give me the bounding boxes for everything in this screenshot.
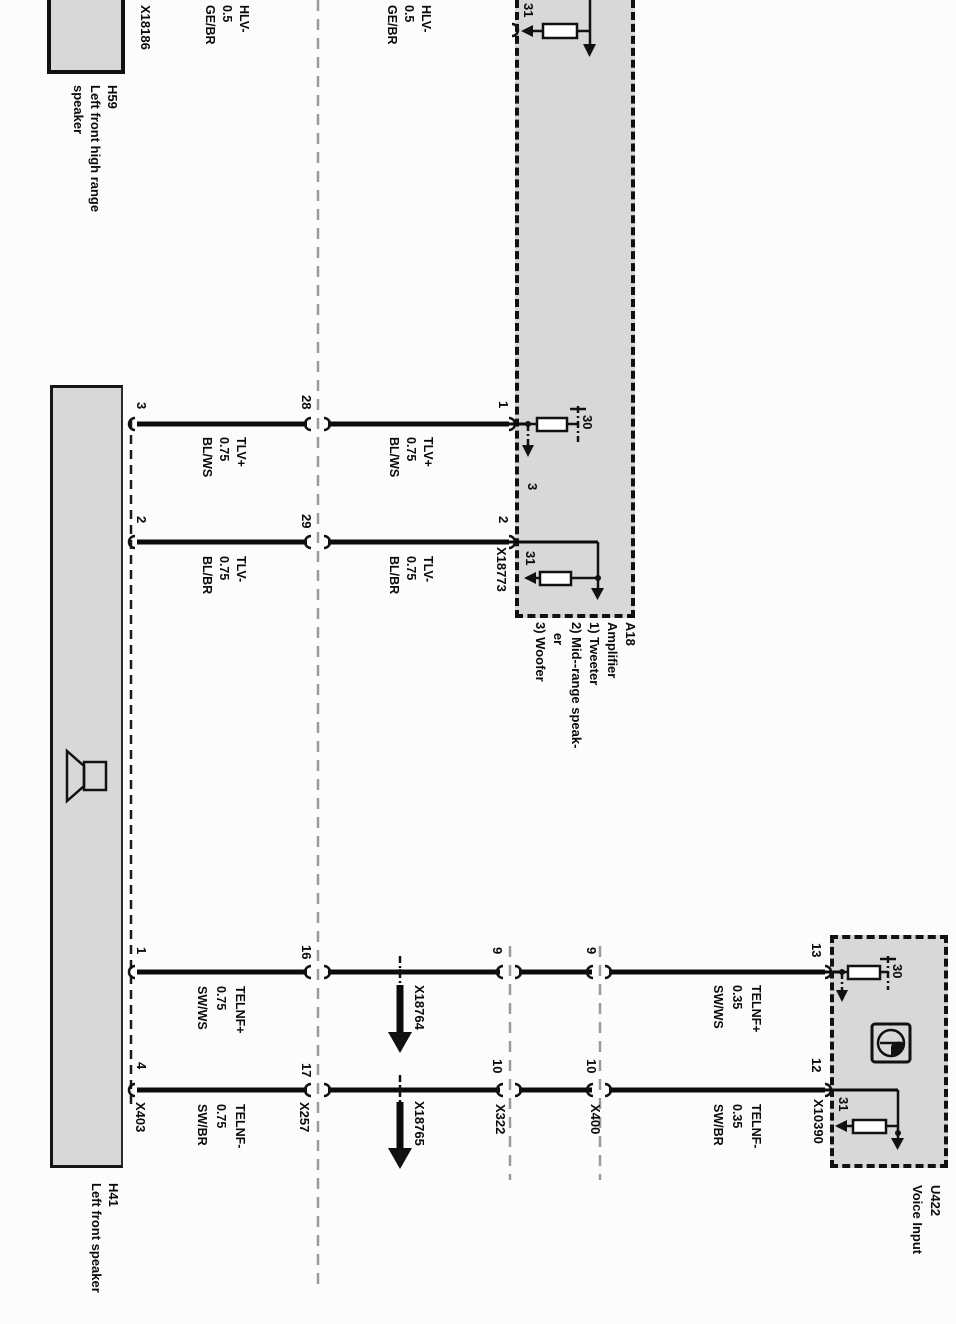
a18-terminal-30-circuit bbox=[509, 406, 586, 457]
wire-label-telnf-minus-35: TELNF- 0.35 SW/BR bbox=[708, 1104, 765, 1148]
resistor-u422-top bbox=[848, 966, 880, 979]
u422-terminal-30-circuit bbox=[825, 956, 896, 1002]
pin-label-13: 13 bbox=[810, 943, 823, 957]
connector-label-x10390: X10390 bbox=[810, 1099, 826, 1144]
wire-label-tlv-plus-1: TLV+ 0.75 BL/WS bbox=[198, 437, 249, 477]
connector-label-x18765: X18765 bbox=[411, 1101, 427, 1146]
pin-label-12: 12 bbox=[810, 1058, 823, 1072]
ground-symbol-u422 bbox=[891, 1138, 904, 1150]
pin-label-h41-1: 1 bbox=[135, 947, 148, 954]
pin-label-h41-4: 4 bbox=[135, 1062, 148, 1069]
pin-label-x400-10: 10 bbox=[585, 1059, 598, 1073]
wire-label-tlv-minus-2: TLV- 0.75 BL/BR bbox=[385, 556, 436, 594]
microphone-icon bbox=[872, 1024, 910, 1062]
wire-label-tlv-plus-2: TLV+ 0.75 BL/WS bbox=[385, 437, 436, 477]
arrow-to-terminal-31-u422 bbox=[835, 1120, 847, 1132]
wire-label-telnf-plus-35: TELNF+ 0.35 SW/WS bbox=[708, 985, 765, 1033]
pin-label-x322-10: 10 bbox=[491, 1059, 504, 1073]
pin-label-16: 16 bbox=[300, 945, 313, 959]
connector-label-x257: X257 bbox=[296, 1102, 312, 1132]
pin-label-17: 17 bbox=[300, 1063, 313, 1077]
connector-label-x400: X400 bbox=[587, 1104, 603, 1134]
resistor-u422-bottom bbox=[853, 1120, 886, 1133]
pin-label-x322-9: 9 bbox=[491, 947, 504, 954]
terminal-label-31-u422: 31 bbox=[837, 1097, 850, 1111]
connector-label-x18773: X18773 bbox=[493, 547, 509, 592]
wire-label-telnf-minus-75: TELNF- 0.75 SW/BR bbox=[192, 1104, 249, 1148]
arrow-to-terminal-31-b bbox=[524, 572, 536, 584]
schematic-stage: X18186 H59 Left front high range speaker… bbox=[0, 0, 956, 1324]
pin-label-a18-2: 2 bbox=[497, 516, 510, 523]
wire-label-tlv-minus-1: TLV- 0.75 BL/BR bbox=[198, 556, 249, 594]
connector-label-x18186: X18186 bbox=[137, 5, 153, 50]
terminal-label-31-bottom: 31 bbox=[524, 551, 537, 565]
resistor-a18-bottom bbox=[540, 572, 571, 585]
terminal-label-30-a18: 30 bbox=[581, 415, 594, 429]
terminal-label-30-u422: 30 bbox=[891, 964, 904, 978]
circuit-number-3: 3 bbox=[526, 483, 539, 490]
continuation-arrow bbox=[522, 445, 534, 457]
caption-h59: H59 Left front high range speaker bbox=[70, 85, 121, 212]
caption-u422: U422 Voice Input bbox=[908, 1185, 944, 1254]
resistor-a18-top bbox=[543, 24, 577, 38]
pin-label-28: 28 bbox=[300, 395, 313, 409]
caption-a18: A18 Amplifier 1) Tweeter 2) Mid--range s… bbox=[531, 622, 639, 748]
pin-label-h41-2: 2 bbox=[135, 516, 148, 523]
wire-label-telnf-plus-75: TELNF+ 0.75 SW/WS bbox=[192, 986, 249, 1034]
connector-label-x322: X322 bbox=[492, 1104, 508, 1134]
pin-label-29: 29 bbox=[300, 514, 313, 528]
ground-symbol-a18-top bbox=[583, 44, 596, 57]
connector-label-x403: X403 bbox=[132, 1102, 148, 1132]
ground-symbol-a18-bottom bbox=[591, 588, 604, 600]
caption-h41: H41 Left front speaker bbox=[88, 1183, 122, 1293]
continuation-arrow-u422 bbox=[836, 990, 848, 1002]
wire-label-hlv-2: HLV- 0.5 GE/BR bbox=[383, 5, 434, 45]
resistor-a18-mid bbox=[537, 418, 567, 431]
terminal-label-31-top: 31 bbox=[522, 3, 535, 17]
arrow-to-terminal-31 bbox=[521, 25, 533, 37]
pin-label-x400-9: 9 bbox=[585, 947, 598, 954]
connector-label-x18764: X18764 bbox=[411, 985, 427, 1030]
pin-label-h41-3: 3 bbox=[135, 402, 148, 409]
pin-label-a18-1: 1 bbox=[497, 401, 510, 408]
speaker-icon bbox=[67, 751, 106, 801]
wire-label-hlv-1: HLV- 0.5 GE/BR bbox=[201, 5, 252, 45]
